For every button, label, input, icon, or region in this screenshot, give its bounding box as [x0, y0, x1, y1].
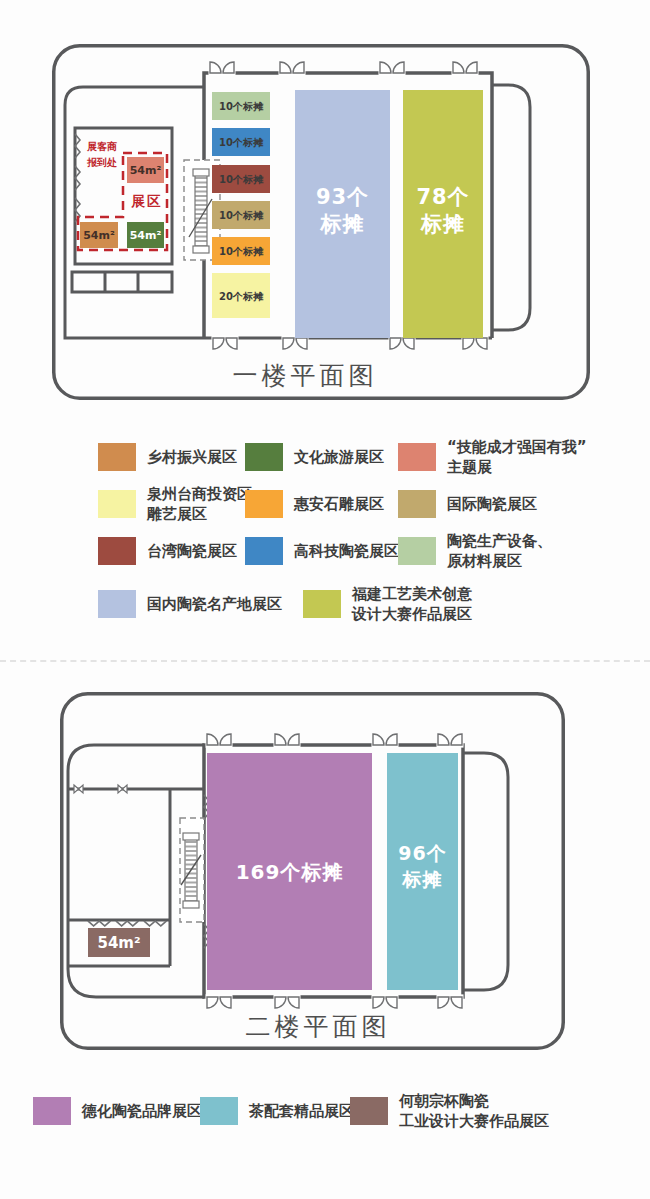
legend-swatch: [350, 1097, 388, 1125]
legend-label: 高科技陶瓷展区: [294, 541, 399, 561]
legend-swatch: [33, 1097, 71, 1125]
hall-block-label: 标摊: [402, 868, 443, 890]
floor1-title: 一楼平面图: [233, 361, 378, 390]
legend-label: “技能成才强国有我”: [447, 437, 587, 457]
legend-label: 德化陶瓷品牌展区: [82, 1101, 202, 1121]
legend-label: 乡村振兴展区: [147, 447, 237, 467]
legend-item: “技能成才强国有我”主题展: [398, 437, 587, 477]
legend-item: 国际陶瓷展区: [398, 484, 537, 524]
double-door-icon: [206, 994, 233, 1008]
hall-block-label: 169个标摊: [236, 860, 344, 884]
legend-label: 工业设计大赛作品展区: [399, 1111, 549, 1131]
booth-block-label: 10个标摊: [219, 210, 264, 221]
legend-label: 原材料展区: [447, 551, 552, 571]
floor2-right-annex-wall: [463, 753, 508, 990]
double-door-icon: [274, 734, 301, 748]
legend-item: 文化旅游展区: [245, 437, 384, 477]
reception-label-line1: 展客商: [86, 141, 117, 152]
area-block-label: 54m²: [130, 229, 162, 242]
area-block-label: 54m²: [97, 934, 140, 952]
hall-block-label: 96个: [398, 842, 446, 864]
legend-label: 台湾陶瓷展区: [147, 541, 237, 561]
legend-label: 主题展: [447, 457, 587, 477]
double-door-icon: [206, 734, 233, 748]
legend-swatch: [398, 537, 436, 565]
area-block-label: 54m²: [83, 229, 115, 242]
legend-item: 陶瓷生产设备、原材料展区: [398, 531, 552, 571]
floor2-title: 二楼平面图: [246, 1012, 391, 1041]
legend-item: 惠安石雕展区: [245, 484, 384, 524]
hall-block-label: 标摊: [320, 212, 365, 236]
double-door-icon: [372, 994, 399, 1008]
legend-swatch: [98, 537, 136, 565]
floor1-plan-svg: 54m² 54m² 54m² 展客商 报到处 展区 10个标摊 10个标摊 10…: [52, 44, 590, 400]
legend-swatch: [200, 1097, 238, 1125]
legend-label: 国内陶瓷名产地展区: [147, 594, 282, 614]
double-door-icon: [279, 62, 306, 76]
legend-label: 设计大赛作品展区: [352, 604, 472, 624]
legend-label: 文化旅游展区: [294, 447, 384, 467]
booth-block-label: 10个标摊: [219, 246, 264, 257]
legend-label: 茶配套精品展区: [249, 1101, 354, 1121]
legend-label: 陶瓷生产设备、: [447, 531, 552, 551]
door-marks-icon: [118, 785, 127, 793]
double-door-icon: [437, 994, 464, 1008]
double-door-icon: [209, 62, 236, 76]
legend-label: 雕艺展区: [147, 504, 252, 524]
door-marks-icon: [144, 921, 166, 926]
legend-item: 德化陶瓷品牌展区: [33, 1091, 202, 1131]
double-door-icon: [372, 734, 399, 748]
double-door-icon: [452, 62, 479, 76]
door-marks-icon: [88, 921, 110, 926]
legend-swatch: [245, 537, 283, 565]
escalator-icon: [180, 818, 204, 922]
legend-item: 何朝宗杯陶瓷工业设计大赛作品展区: [350, 1091, 549, 1131]
area-block-label: 54m²: [130, 164, 162, 177]
double-door-icon: [274, 994, 301, 1008]
legend-label: 泉州台商投资区: [147, 484, 252, 504]
booth-block-label: 10个标摊: [219, 174, 264, 185]
section-separator: [0, 660, 650, 662]
legend-item: 泉州台商投资区雕艺展区: [98, 484, 252, 524]
floor1-plan: 54m² 54m² 54m² 展客商 报到处 展区 10个标摊 10个标摊 10…: [52, 44, 590, 400]
floor1-right-annex-wall: [492, 85, 530, 330]
zone-label: 展区: [131, 193, 163, 209]
double-door-icon: [379, 62, 406, 76]
door-marks-icon: [74, 785, 83, 793]
floor2-plan: 169个标摊 96个 标摊 54m² 二楼平面图: [60, 692, 565, 1050]
small-rooms: [72, 272, 172, 292]
legend-item: 国内陶瓷名产地展区: [98, 584, 282, 624]
legend-item: 台湾陶瓷展区: [98, 531, 237, 571]
legend-label: 福建工艺美术创意: [352, 584, 472, 604]
legend-label: 国际陶瓷展区: [447, 494, 537, 514]
legend-item: 乡村振兴展区: [98, 437, 237, 477]
booth-block-label: 20个标摊: [219, 291, 264, 302]
legend-swatch: [398, 443, 436, 471]
legend-swatch: [98, 443, 136, 471]
booth-block-label: 10个标摊: [219, 101, 264, 112]
hall-block-label: 标摊: [420, 212, 465, 236]
hall-block-label: 93个: [316, 185, 369, 209]
legend-swatch: [245, 443, 283, 471]
legend-swatch: [303, 590, 341, 618]
legend-label: 何朝宗杯陶瓷: [399, 1091, 549, 1111]
hall-block-label: 78个: [416, 185, 469, 209]
floor2-plan-svg: 169个标摊 96个 标摊 54m² 二楼平面图: [60, 692, 565, 1050]
booth-block-label: 10个标摊: [219, 137, 264, 148]
reception-label-line2: 报到处: [86, 157, 117, 168]
door-marks-icon: [116, 921, 138, 926]
legend-item: 福建工艺美术创意设计大赛作品展区: [303, 584, 472, 624]
double-door-icon: [212, 335, 239, 349]
double-door-icon: [437, 734, 464, 748]
legend-label: 惠安石雕展区: [294, 494, 384, 514]
legend-swatch: [398, 490, 436, 518]
legend-swatch: [245, 490, 283, 518]
legend-item: 茶配套精品展区: [200, 1091, 354, 1131]
legend-swatch: [98, 590, 136, 618]
legend-swatch: [98, 490, 136, 518]
legend-item: 高科技陶瓷展区: [245, 531, 399, 571]
